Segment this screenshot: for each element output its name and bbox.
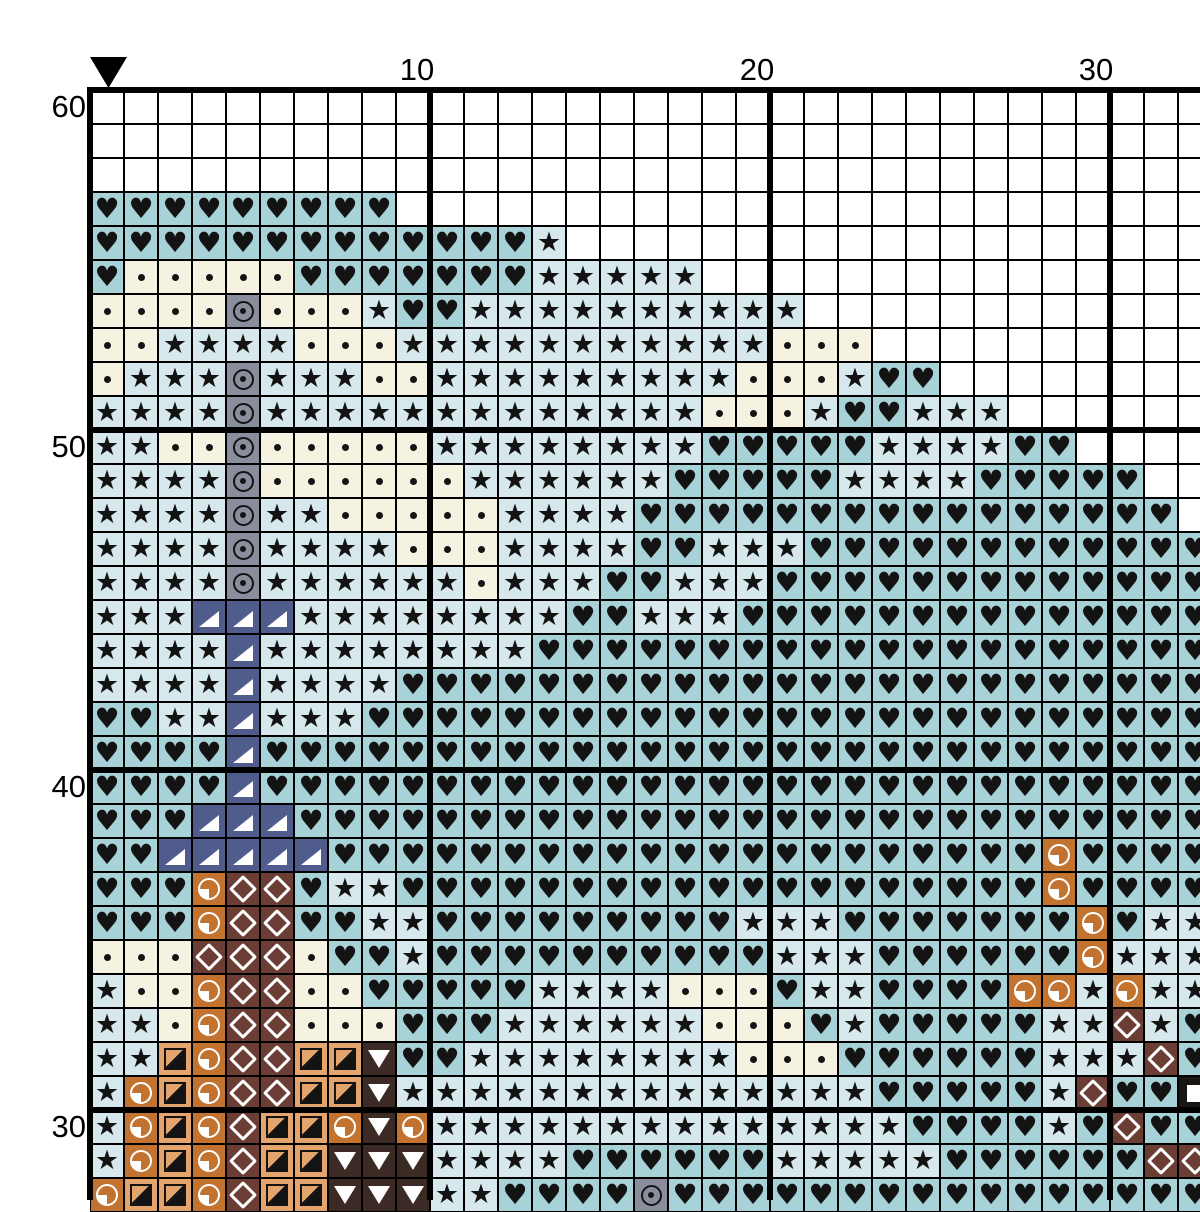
- pattern-cell: ★: [770, 906, 804, 940]
- pattern-cell: [226, 736, 260, 770]
- star-icon: ★: [469, 1180, 493, 1210]
- pattern-cell: ♥: [90, 702, 124, 736]
- pattern-cell: ♥: [1110, 702, 1144, 736]
- heart-icon: ♥: [1148, 704, 1173, 734]
- pattern-cell: [1144, 158, 1178, 192]
- half-square-icon: [164, 1048, 186, 1070]
- star-icon: ★: [741, 534, 765, 564]
- pattern-cell: [1110, 362, 1144, 396]
- pattern-cell: [124, 940, 158, 974]
- heart-icon: ♥: [1012, 1112, 1037, 1142]
- star-icon: ★: [435, 1146, 459, 1176]
- pattern-cell: [838, 328, 872, 362]
- pattern-cell: ♥: [634, 906, 668, 940]
- heart-icon: ♥: [672, 500, 697, 530]
- pattern-cell: ♥: [668, 702, 702, 736]
- pattern-cell: [906, 90, 940, 124]
- star-icon: ★: [95, 398, 119, 428]
- pattern-cell: ♥: [498, 226, 532, 260]
- pattern-cell: ★: [498, 634, 532, 668]
- pattern-cell: ★: [362, 872, 396, 906]
- pattern-cell: [226, 396, 260, 430]
- heart-icon: ♥: [672, 840, 697, 870]
- pattern-cell: ★: [294, 532, 328, 566]
- pattern-cell: [192, 872, 226, 906]
- heart-icon: ♥: [876, 976, 901, 1006]
- dot-icon: [376, 376, 383, 383]
- pattern-cell: ♥: [906, 1042, 940, 1076]
- heart-icon: ♥: [1182, 1180, 1200, 1210]
- pattern-cell: ♥: [974, 838, 1008, 872]
- pattern-cell: [464, 192, 498, 226]
- star-icon: ★: [197, 534, 221, 564]
- pattern-cell: [770, 396, 804, 430]
- pattern-cell: ♥: [906, 702, 940, 736]
- pattern-cell: ★: [192, 362, 226, 396]
- pattern-cell: ★: [668, 566, 702, 600]
- pattern-cell: ♥: [668, 1144, 702, 1178]
- dot-icon: [410, 512, 417, 519]
- pattern-cell: ♥: [1042, 498, 1076, 532]
- pattern-cell: ★: [600, 294, 634, 328]
- pattern-cell: [1076, 260, 1110, 294]
- pattern-cell: [226, 872, 260, 906]
- pattern-cell: ♥: [90, 804, 124, 838]
- pattern-cell: [1042, 294, 1076, 328]
- pattern-cell: ♥: [1178, 1110, 1200, 1144]
- heart-icon: ♥: [230, 228, 255, 258]
- pattern-cell: [260, 1042, 294, 1076]
- circle-dot-icon: [233, 471, 254, 492]
- pattern-cell: [1178, 294, 1200, 328]
- heart-icon: ♥: [808, 704, 833, 734]
- pattern-cell: ★: [736, 328, 770, 362]
- pattern-cell: [1008, 974, 1042, 1008]
- pattern-cell: ♥: [1008, 430, 1042, 464]
- star-icon: ★: [707, 330, 731, 360]
- star-icon: ★: [877, 432, 901, 462]
- star-icon: ★: [1183, 908, 1200, 938]
- heart-icon: ♥: [1080, 670, 1105, 700]
- pattern-cell: ♥: [498, 668, 532, 702]
- star-icon: ★: [741, 330, 765, 360]
- pattern-cell: ★: [1144, 906, 1178, 940]
- heart-icon: ♥: [400, 670, 425, 700]
- pattern-cell: ♥: [838, 702, 872, 736]
- pattern-cell: [328, 328, 362, 362]
- dot-icon: [750, 988, 757, 995]
- heart-icon: ♥: [978, 738, 1003, 768]
- heart-icon: ♥: [706, 1146, 731, 1176]
- heart-icon: ♥: [536, 874, 561, 904]
- dot-icon: [818, 342, 825, 349]
- pattern-cell: [838, 260, 872, 294]
- pattern-cell: [226, 158, 260, 192]
- pattern-cell: ★: [600, 1042, 634, 1076]
- pattern-cell: ♥: [464, 260, 498, 294]
- heart-icon: ♥: [1012, 840, 1037, 870]
- pattern-cell: ★: [192, 566, 226, 600]
- pattern-cell: ♥: [532, 1178, 566, 1212]
- star-icon: ★: [639, 1010, 663, 1040]
- heart-icon: ♥: [1012, 432, 1037, 462]
- pattern-cell: [260, 804, 294, 838]
- pattern-cell: [1110, 396, 1144, 430]
- pattern-cell: ★: [396, 940, 430, 974]
- pattern-cell: ♥: [1076, 1110, 1110, 1144]
- quarter-circle-icon: [1116, 980, 1138, 1002]
- star-icon: ★: [503, 1010, 527, 1040]
- dot-icon: [376, 512, 383, 519]
- pattern-cell: [1144, 260, 1178, 294]
- pattern-cell: ★: [532, 1008, 566, 1042]
- dot-icon: [784, 1022, 791, 1029]
- heart-icon: ♥: [1148, 670, 1173, 700]
- pattern-cell: ♥: [532, 668, 566, 702]
- pattern-cell: ♥: [940, 1076, 974, 1110]
- pattern-cell: [260, 940, 294, 974]
- heart-icon: ♥: [910, 908, 935, 938]
- pattern-cell: [1144, 430, 1178, 464]
- heart-icon: ♥: [740, 466, 765, 496]
- heart-icon: ♥: [604, 1146, 629, 1176]
- diamond-icon: [229, 909, 257, 937]
- quarter-circle-icon: [198, 1184, 220, 1206]
- heart-icon: ♥: [1080, 500, 1105, 530]
- pattern-cell: [124, 974, 158, 1008]
- pattern-cell: ★: [260, 396, 294, 430]
- heart-icon: ♥: [366, 976, 391, 1006]
- pattern-cell: ★: [702, 1042, 736, 1076]
- pattern-cell: [226, 1076, 260, 1110]
- heart-icon: ♥: [944, 1180, 969, 1210]
- heart-icon: ♥: [128, 738, 153, 768]
- star-icon: ★: [163, 500, 187, 530]
- pattern-cell: ♥: [566, 600, 600, 634]
- heart-icon: ♥: [842, 908, 867, 938]
- heart-icon: ♥: [638, 806, 663, 836]
- pattern-cell: [158, 974, 192, 1008]
- pattern-cell: ♥: [600, 600, 634, 634]
- heart-icon: ♥: [1148, 1180, 1173, 1210]
- star-icon: ★: [911, 432, 935, 462]
- star-icon: ★: [639, 398, 663, 428]
- heart-icon: ♥: [502, 228, 527, 258]
- pattern-cell: [498, 192, 532, 226]
- pattern-cell: ★: [226, 328, 260, 362]
- dot-icon: [852, 342, 859, 349]
- pattern-cell: ★: [328, 600, 362, 634]
- pattern-cell: ♥: [1178, 736, 1200, 770]
- pattern-cell: ♥: [600, 736, 634, 770]
- pattern-cell: ★: [124, 1042, 158, 1076]
- stitch-grid: ♥♥♥♥♥♥♥♥♥♥♥♥♥♥♥♥♥♥♥♥♥♥★♥♥♥♥♥♥♥♥★★★★★★♥♥★…: [90, 90, 1200, 1212]
- pattern-cell: ★: [532, 1144, 566, 1178]
- pattern-cell: ★: [192, 702, 226, 736]
- pattern-cell: [362, 1178, 396, 1212]
- triangle-down-icon: [368, 1050, 390, 1068]
- triangle-corner-icon: [233, 747, 253, 763]
- pattern-cell: ★: [158, 464, 192, 498]
- heart-icon: ♥: [774, 976, 799, 1006]
- pattern-cell: ★: [566, 1110, 600, 1144]
- pattern-cell: ★: [464, 1042, 498, 1076]
- pattern-cell: ♥: [668, 804, 702, 838]
- star-icon: ★: [95, 500, 119, 530]
- pattern-cell: [328, 464, 362, 498]
- quarter-circle-icon: [198, 1014, 220, 1036]
- pattern-cell: [328, 498, 362, 532]
- pattern-cell: ♥: [872, 634, 906, 668]
- pattern-cell: ★: [464, 464, 498, 498]
- heart-icon: ♥: [434, 1044, 459, 1074]
- star-icon: ★: [129, 602, 153, 632]
- pattern-cell: ♥: [1178, 838, 1200, 872]
- pattern-cell: ♥: [838, 906, 872, 940]
- heart-icon: ♥: [808, 1180, 833, 1210]
- heart-icon: ♥: [876, 398, 901, 428]
- pattern-cell: ★: [260, 362, 294, 396]
- star-icon: ★: [537, 398, 561, 428]
- pattern-cell: [294, 124, 328, 158]
- pattern-cell: ♥: [906, 974, 940, 1008]
- dot-icon: [342, 308, 349, 315]
- pattern-cell: ♥: [328, 804, 362, 838]
- pattern-cell: ★: [532, 600, 566, 634]
- star-icon: ★: [1047, 1010, 1071, 1040]
- pattern-cell: ♥: [974, 532, 1008, 566]
- heart-icon: ♥: [366, 262, 391, 292]
- pattern-cell: ★: [634, 328, 668, 362]
- star-icon: ★: [197, 704, 221, 734]
- heart-icon: ♥: [910, 738, 935, 768]
- pattern-cell: [362, 1144, 396, 1178]
- heart-icon: ♥: [1046, 602, 1071, 632]
- heart-icon: ♥: [1012, 636, 1037, 666]
- star-icon: ★: [299, 398, 323, 428]
- pattern-cell: ★: [294, 634, 328, 668]
- pattern-cell: ★: [804, 396, 838, 430]
- heart-icon: ♥: [604, 806, 629, 836]
- pattern-cell: ♥: [668, 1178, 702, 1212]
- dot-icon: [750, 410, 757, 417]
- heart-icon: ♥: [468, 874, 493, 904]
- triangle-down-icon: [402, 1152, 424, 1170]
- pattern-cell: ★: [260, 328, 294, 362]
- heart-icon: ♥: [876, 534, 901, 564]
- pattern-cell: [804, 90, 838, 124]
- pattern-cell: [532, 192, 566, 226]
- pattern-cell: ★: [294, 702, 328, 736]
- quarter-circle-icon: [198, 1048, 220, 1070]
- pattern-cell: ♥: [1178, 532, 1200, 566]
- star-icon: ★: [163, 398, 187, 428]
- star-icon: ★: [1047, 1044, 1071, 1074]
- pattern-cell: [1144, 294, 1178, 328]
- pattern-cell: ♥: [124, 906, 158, 940]
- pattern-cell: ♥: [702, 838, 736, 872]
- star-icon: ★: [197, 466, 221, 496]
- pattern-cell: ★: [668, 1042, 702, 1076]
- pattern-cell: [294, 1076, 328, 1110]
- dot-icon: [716, 1022, 723, 1029]
- pattern-cell: ♥: [1110, 498, 1144, 532]
- dot-icon: [444, 546, 451, 553]
- pattern-cell: [1008, 260, 1042, 294]
- heart-icon: ♥: [978, 976, 1003, 1006]
- pattern-cell: [668, 974, 702, 1008]
- heart-icon: ♥: [978, 1112, 1003, 1142]
- pattern-cell: ♥: [702, 430, 736, 464]
- pattern-cell: ★: [464, 1178, 498, 1212]
- heart-icon: ♥: [808, 534, 833, 564]
- pattern-cell: [566, 192, 600, 226]
- star-icon: ★: [537, 1044, 561, 1074]
- pattern-cell: [158, 294, 192, 328]
- triangle-down-icon: [368, 1186, 390, 1204]
- star-icon: ★: [129, 364, 153, 394]
- heart-icon: ♥: [1182, 874, 1200, 904]
- pattern-cell: [1178, 192, 1200, 226]
- pattern-cell: ♥: [906, 600, 940, 634]
- heart-icon: ♥: [706, 874, 731, 904]
- heart-icon: ♥: [1114, 534, 1139, 564]
- star-icon: ★: [129, 1044, 153, 1074]
- heart-icon: ♥: [740, 942, 765, 972]
- heart-icon: ♥: [502, 772, 527, 802]
- pattern-cell: ★: [702, 566, 736, 600]
- diamond-icon: [229, 1113, 257, 1141]
- pattern-cell: ♥: [940, 566, 974, 600]
- star-icon: ★: [1149, 908, 1173, 938]
- heart-icon: ♥: [570, 738, 595, 768]
- pattern-cell: ★: [396, 1076, 430, 1110]
- pattern-cell: ★: [532, 974, 566, 1008]
- star-icon: ★: [605, 364, 629, 394]
- heart-icon: ♥: [876, 874, 901, 904]
- pattern-cell: ♥: [600, 1144, 634, 1178]
- star-icon: ★: [469, 1146, 493, 1176]
- diamond-icon: [263, 1079, 291, 1107]
- star-icon: ★: [503, 636, 527, 666]
- heart-icon: ♥: [672, 1180, 697, 1210]
- heart-icon: ♥: [978, 602, 1003, 632]
- heart-icon: ♥: [910, 364, 935, 394]
- heart-icon: ♥: [808, 840, 833, 870]
- dot-icon: [818, 1056, 825, 1063]
- pattern-cell: [668, 90, 702, 124]
- pattern-cell: [736, 260, 770, 294]
- pattern-cell: ★: [736, 294, 770, 328]
- pattern-cell: ♥: [464, 838, 498, 872]
- pattern-cell: ★: [566, 532, 600, 566]
- star-icon: ★: [401, 908, 425, 938]
- heart-icon: ♥: [536, 772, 561, 802]
- pattern-cell: [498, 158, 532, 192]
- pattern-cell: [1076, 396, 1110, 430]
- pattern-cell: ♥: [634, 498, 668, 532]
- dot-icon: [478, 512, 485, 519]
- pattern-cell: [736, 974, 770, 1008]
- pattern-cell: [804, 1042, 838, 1076]
- pattern-cell: ♥: [906, 1008, 940, 1042]
- pattern-cell: ★: [634, 1110, 668, 1144]
- star-icon: ★: [537, 330, 561, 360]
- pattern-cell: ★: [430, 1144, 464, 1178]
- star-icon: ★: [469, 398, 493, 428]
- star-icon: ★: [673, 432, 697, 462]
- pattern-cell: ★: [362, 532, 396, 566]
- half-square-icon: [164, 1184, 186, 1206]
- heart-icon: ♥: [774, 840, 799, 870]
- heart-icon: ♥: [366, 942, 391, 972]
- pattern-cell: ♥: [940, 838, 974, 872]
- pattern-cell: ★: [1110, 1042, 1144, 1076]
- pattern-cell: ♥: [1076, 634, 1110, 668]
- heart-icon: ♥: [978, 568, 1003, 598]
- dot-icon: [342, 342, 349, 349]
- heart-icon: ♥: [944, 738, 969, 768]
- heart-icon: ♥: [808, 500, 833, 530]
- heart-icon: ♥: [808, 432, 833, 462]
- pattern-cell: ♥: [396, 804, 430, 838]
- star-icon: ★: [129, 670, 153, 700]
- heart-icon: ♥: [1080, 534, 1105, 564]
- quarter-circle-icon: [1048, 844, 1070, 866]
- pattern-cell: ♥: [532, 736, 566, 770]
- heart-icon: ♥: [944, 942, 969, 972]
- pattern-cell: ★: [1076, 1008, 1110, 1042]
- pattern-cell: ★: [634, 1076, 668, 1110]
- pattern-cell: ♥: [260, 226, 294, 260]
- pattern-cell: ♥: [328, 770, 362, 804]
- row-label-50: 50: [0, 429, 86, 465]
- pattern-cell: ♥: [1178, 1178, 1200, 1212]
- heart-icon: ♥: [638, 874, 663, 904]
- heart-icon: ♥: [298, 228, 323, 258]
- pattern-cell: ★: [566, 260, 600, 294]
- star-icon: ★: [605, 398, 629, 428]
- pattern-cell: ★: [498, 430, 532, 464]
- pattern-cell: ♥: [1042, 566, 1076, 600]
- pattern-cell: [940, 362, 974, 396]
- pattern-cell: ♥: [702, 668, 736, 702]
- pattern-cell: ★: [158, 498, 192, 532]
- pattern-cell: ★: [294, 396, 328, 430]
- pattern-cell: [158, 940, 192, 974]
- pattern-cell: [634, 1178, 668, 1212]
- pattern-cell: ♥: [1008, 940, 1042, 974]
- heart-icon: ♥: [502, 704, 527, 734]
- pattern-cell: ♥: [634, 838, 668, 872]
- pattern-cell: ♥: [362, 702, 396, 736]
- pattern-cell: [940, 158, 974, 192]
- heart-icon: ♥: [944, 1146, 969, 1176]
- pattern-cell: [396, 192, 430, 226]
- pattern-cell: ♥: [668, 872, 702, 906]
- pattern-cell: [328, 1110, 362, 1144]
- pattern-cell: ♥: [940, 1008, 974, 1042]
- pattern-cell: [158, 124, 192, 158]
- pattern-cell: ♥: [736, 634, 770, 668]
- diamond-icon: [1181, 1147, 1200, 1175]
- pattern-cell: [838, 294, 872, 328]
- pattern-cell: ♥: [90, 838, 124, 872]
- pattern-cell: ★: [90, 1076, 124, 1110]
- dot-icon: [376, 444, 383, 451]
- pattern-cell: [600, 124, 634, 158]
- heart-icon: ♥: [536, 670, 561, 700]
